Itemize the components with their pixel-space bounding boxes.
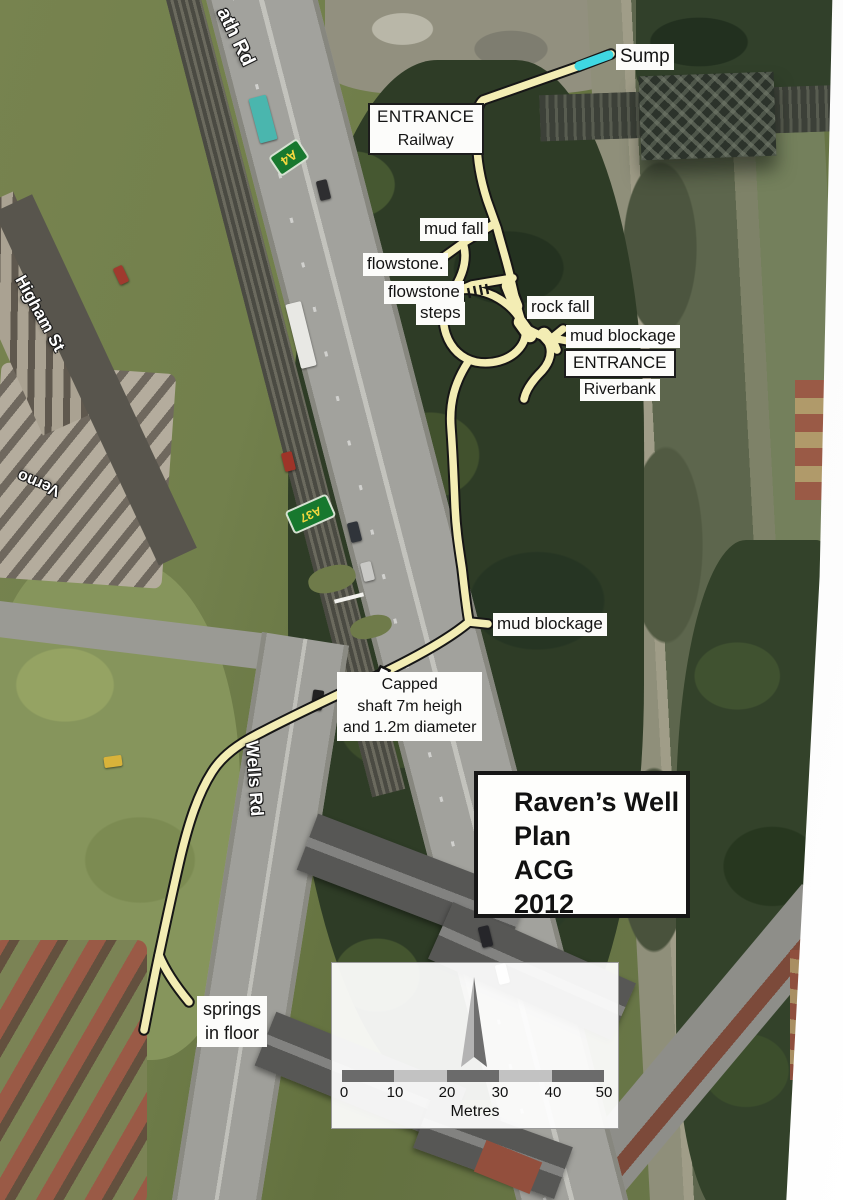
label-rock-fall: rock fall [527, 296, 594, 319]
label-mud-fall: mud fall [420, 218, 488, 241]
scale-segment [499, 1070, 551, 1082]
map-title-line1: Raven’s Well [514, 785, 686, 819]
label-springs: springs in floor [197, 996, 267, 1047]
vehicle-car [113, 265, 130, 286]
label-entrance-railway-line2: Railway [398, 132, 454, 149]
label-sump: Sump [616, 44, 674, 70]
label-springs-line2: in floor [205, 1023, 259, 1043]
scale-segment [342, 1070, 394, 1082]
label-entrance-railway-line1: ENTRANCE [377, 107, 475, 126]
scale-segment [447, 1070, 499, 1082]
label-capped-shaft-line1: Capped [382, 676, 438, 693]
label-entrance-riverbank-line1: ENTRANCE [564, 349, 676, 378]
label-capped-shaft-line3: and 1.2m diameter [343, 719, 476, 736]
map-title-line2: Plan [514, 819, 686, 853]
scale-tick: 40 [545, 1084, 562, 1101]
scale-tick: 30 [492, 1084, 509, 1101]
route-shield-a37-text: A37 [298, 503, 324, 525]
label-springs-line1: springs [203, 999, 261, 1019]
north-arrow-icon [332, 975, 620, 1079]
label-entrance-riverbank: ENTRANCE Riverbank [564, 349, 676, 401]
scale-tick: 10 [387, 1084, 404, 1101]
label-mud-blockage-lower: mud blockage [493, 613, 607, 636]
scale-segment [394, 1070, 446, 1082]
label-mud-blockage-upper: mud blockage [566, 325, 680, 348]
houses-bottom-left [0, 940, 147, 1200]
scale-tick: 0 [340, 1084, 348, 1101]
scale-tick: 20 [439, 1084, 456, 1101]
scale-unit-label: Metres [332, 1103, 618, 1121]
ravens-well-map: ath Rd Higham St Wells Rd Verno A4 A37 S… [0, 0, 843, 1200]
map-title-box: Raven’s Well Plan ACG 2012 [474, 771, 690, 918]
scale-tick: 50 [596, 1084, 613, 1101]
scale-bar-panel: 0 10 20 30 40 50 Metres [331, 962, 619, 1129]
label-flowstone-lower: flowstone [384, 281, 464, 304]
route-shield-a4-text: A4 [278, 147, 300, 169]
label-capped-shaft: Capped shaft 7m heigh and 1.2m diameter [337, 672, 482, 741]
label-capped-shaft-line2: shaft 7m heigh [357, 698, 462, 715]
map-title-line3: ACG [514, 853, 686, 887]
railway-bridge [639, 72, 777, 161]
label-steps: steps [416, 302, 465, 325]
scale-segment [552, 1070, 604, 1082]
label-entrance-riverbank-line2: Riverbank [580, 379, 660, 401]
map-title-line4: 2012 [514, 887, 686, 921]
label-entrance-railway: ENTRANCE Railway [368, 103, 484, 155]
label-flowstone-upper: flowstone. [363, 253, 448, 276]
